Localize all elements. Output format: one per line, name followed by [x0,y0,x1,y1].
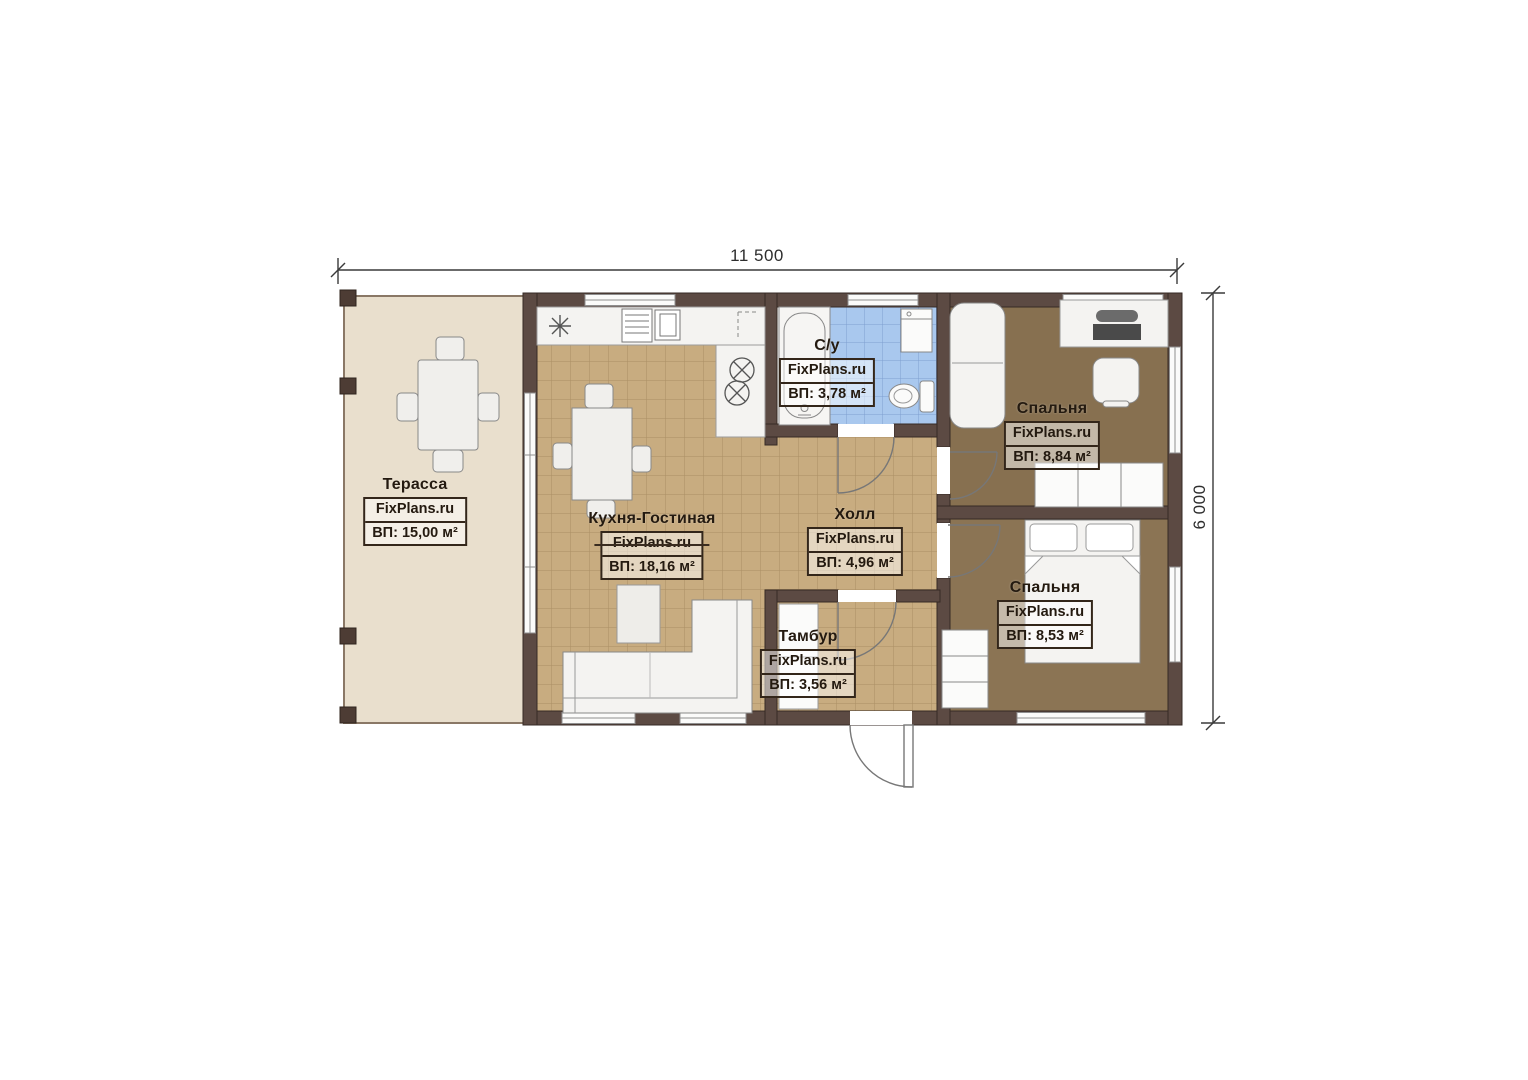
floor-plan-canvas: 11 500 6 000 Терасса FixPlans.ru ВП: 15,… [0,0,1528,1080]
window-living-bottom-2 [680,713,746,724]
fridge-icon [622,309,652,342]
desk-icon [1060,300,1168,347]
printer-icon [1096,310,1138,322]
chair-icon [1093,358,1139,407]
entrance-door-opening [850,711,912,725]
window-bedroom-bottom [1017,713,1145,724]
pillow-icon [1086,524,1133,551]
chair-icon [478,393,499,421]
terrace-post [340,378,356,394]
window-bathroom-top [848,295,918,306]
coffee-table-icon [617,585,660,643]
counter-side-run [716,345,765,437]
chair-icon [585,384,613,408]
window-bedroom-top-right [1170,347,1181,453]
double-bed-icon [1025,520,1140,663]
table-icon [572,408,632,500]
sink-symbol-icon [549,315,571,337]
wall-kitchen-bath [765,293,777,445]
window-living-bottom-1 [562,713,635,724]
window-kitchen-top [585,295,675,306]
chair-icon [632,446,651,472]
dimension-width-label: 11 500 [730,246,784,266]
window-bedroom-bottom-right [1170,567,1181,662]
pillow-icon [1030,524,1077,551]
wall-mid-right-upper [937,293,950,447]
dimension-height-label: 6 000 [1190,484,1210,529]
terrace-post [340,628,356,644]
entrance-door-icon [850,725,913,787]
wall-bath-bottom-left [765,424,838,437]
wardrobe-icon [1035,463,1163,507]
chair-icon [433,450,463,472]
single-bed-icon [950,303,1005,428]
window-living-left [525,393,536,633]
wall-vestibule-left [765,590,777,725]
hall-floor [765,437,937,590]
bedroom-bottom-door-opening [937,523,950,578]
appliance-icon [655,310,680,340]
chair-icon [397,393,418,421]
chair-icon [436,337,464,360]
bedroom-top-door-opening [937,447,950,494]
terrace-post [340,290,356,306]
vestibule-closet-icon [779,604,818,709]
printer-body-icon [1093,324,1141,340]
floor-plan-drawing [0,0,1528,1080]
chair-icon [553,443,572,469]
wall-between-bedrooms [937,506,1168,519]
bathtub-icon [779,307,830,425]
chair-icon [587,500,615,518]
vestibule-door-opening [838,590,896,602]
washing-machine-icon [901,309,932,352]
wardrobe-icon [942,630,988,708]
table-icon [418,360,478,450]
bathroom-door-opening [838,424,894,437]
wall-vestibule-top-right [896,590,940,602]
terrace-post [340,707,356,723]
